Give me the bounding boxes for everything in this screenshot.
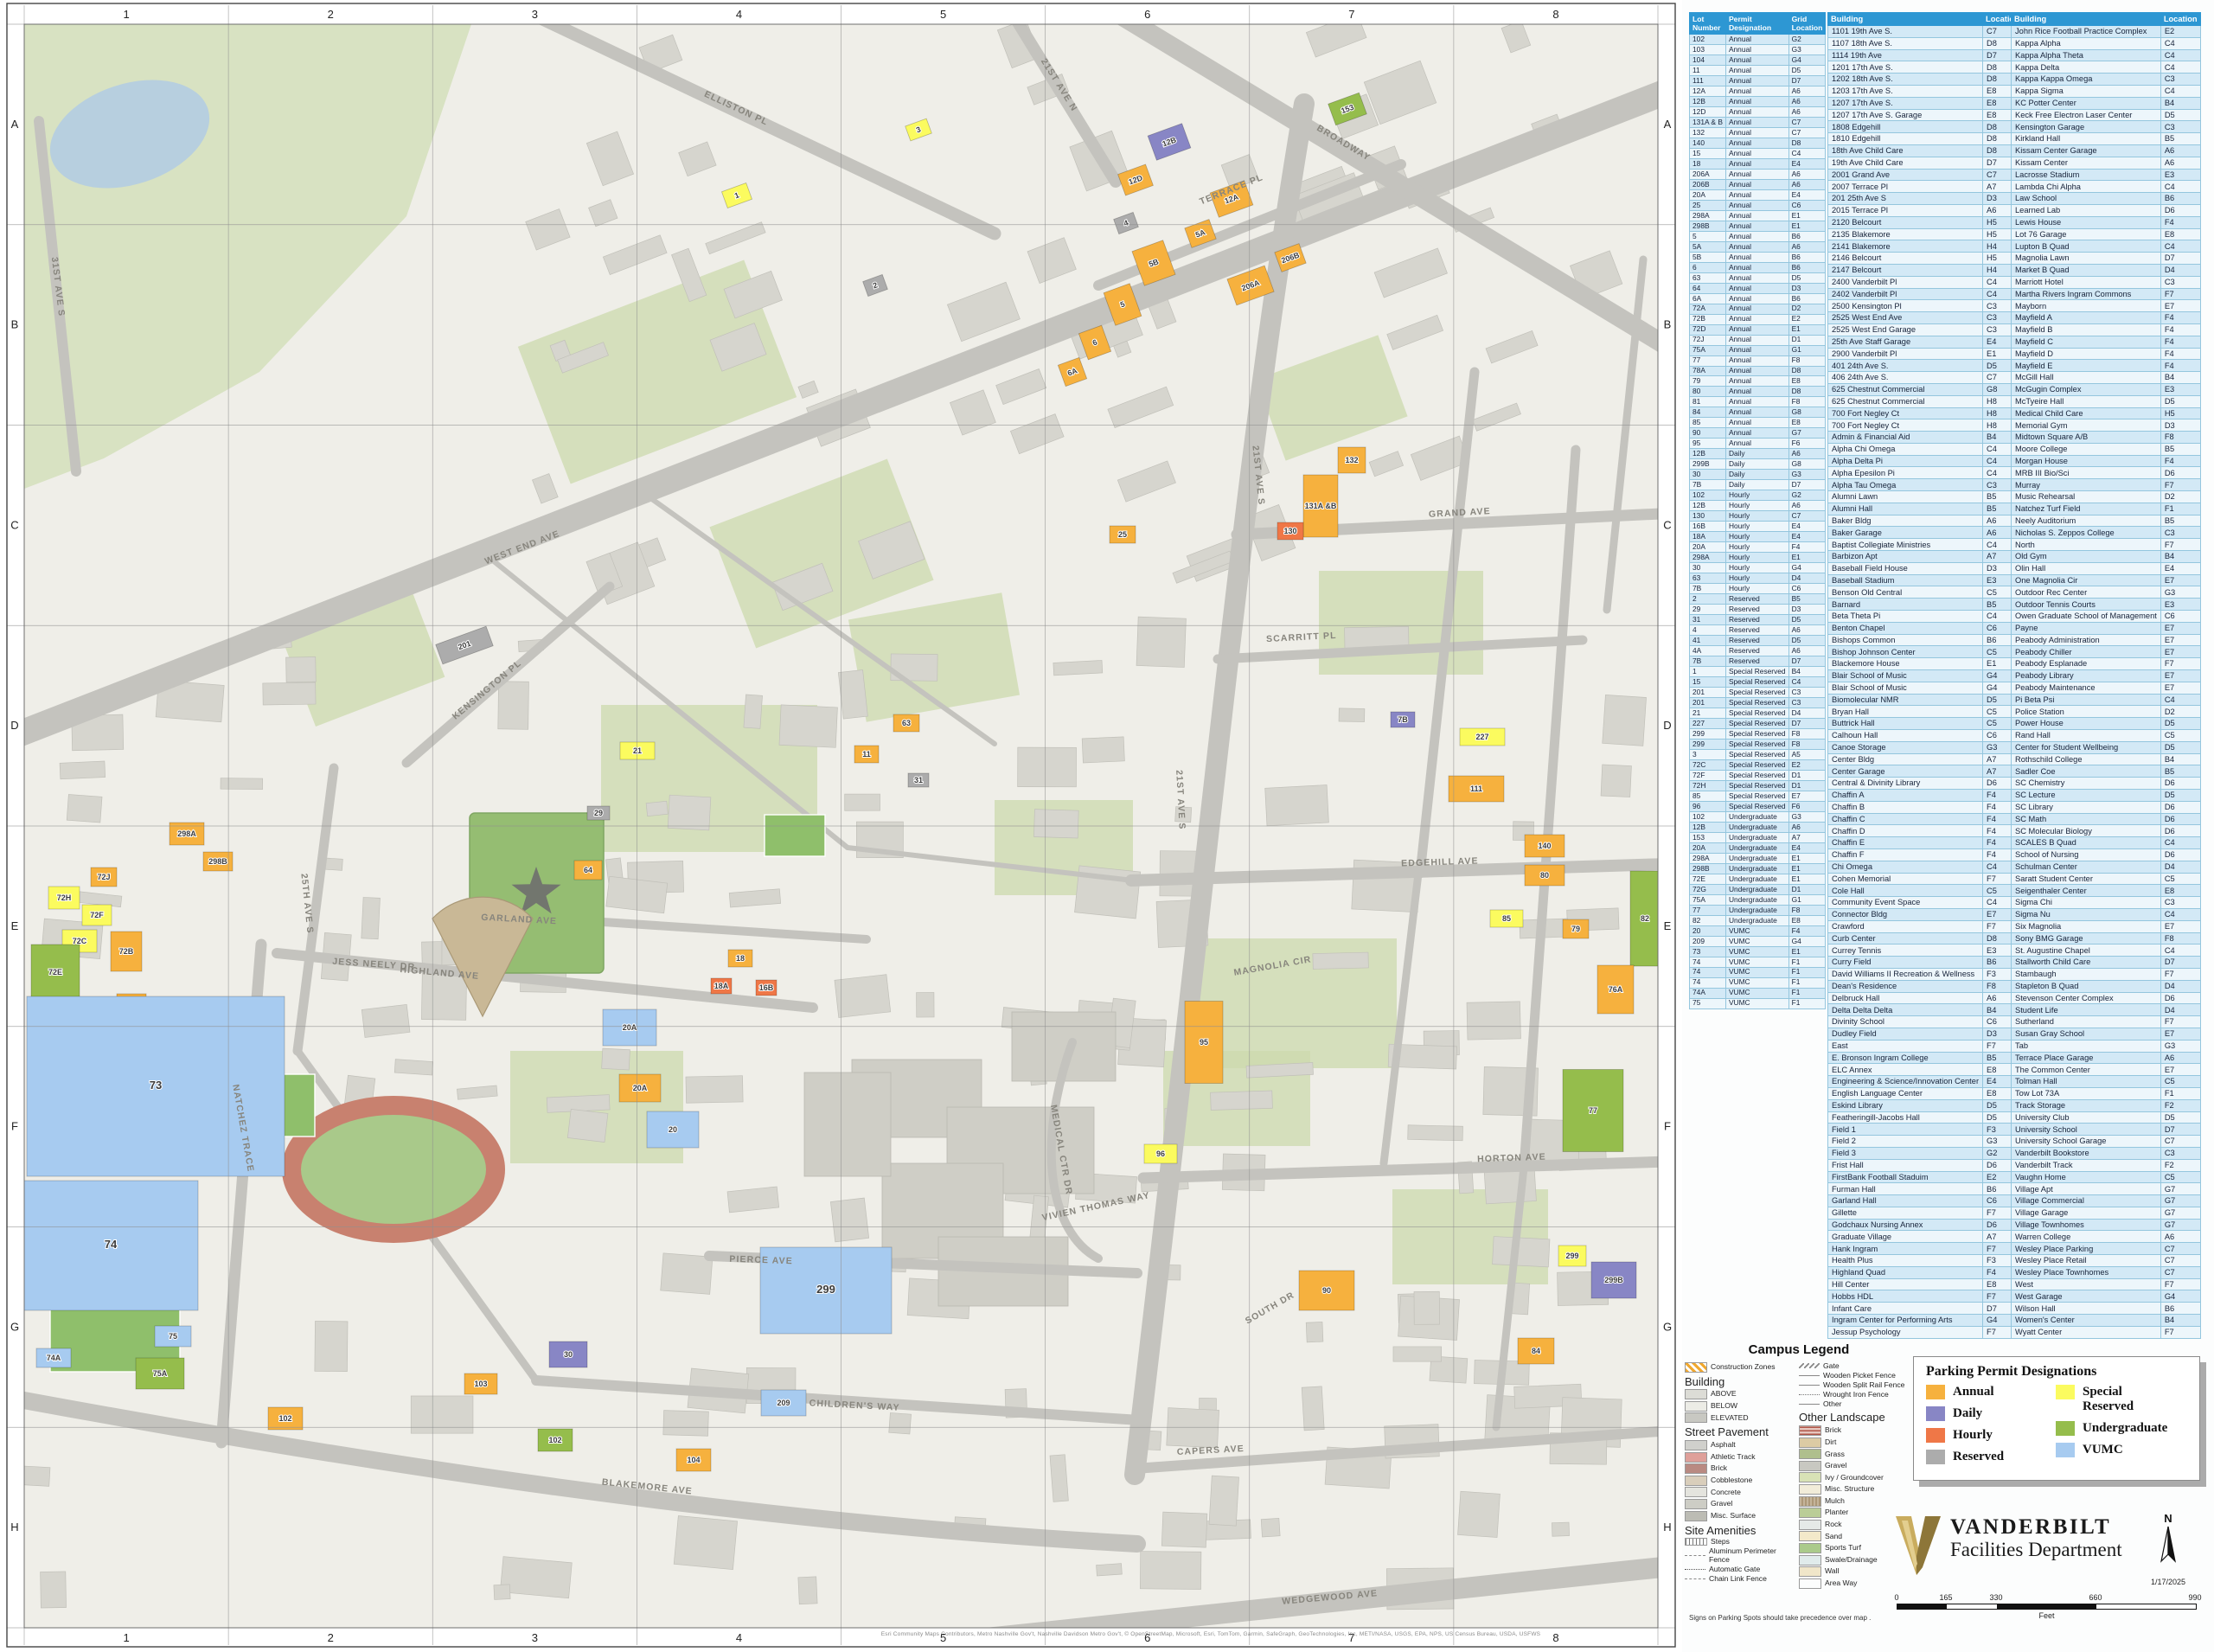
table-cell: Memorial Gym (2012, 419, 2161, 432)
table-cell: F8 (1788, 739, 1826, 749)
table-cell: 19th Ave Child Care (1828, 157, 1983, 169)
table-cell: F7 (2160, 1278, 2200, 1290)
table-cell: Pi Beta Psi (2012, 694, 2161, 706)
table-cell: Mayborn (2012, 300, 2161, 312)
table-row: 30DailyG3 (1690, 470, 1826, 480)
table-cell: 82 (1690, 915, 1726, 925)
legend-item: Wrought Iron Fence (1799, 1391, 1913, 1399)
table-cell: 6A (1690, 293, 1726, 304)
table-cell: Undergraduate (1725, 832, 1788, 842)
legend-swatch-icon (1799, 1449, 1821, 1459)
table-cell: 130 (1690, 511, 1726, 522)
table-row: 5AAnnualA6 (1690, 241, 1826, 252)
table-cell: Mayfield E (2012, 360, 2161, 372)
table-cell: Center Garage (1828, 765, 1983, 778)
permit-label: Special Reserved (2083, 1385, 2134, 1414)
campus-map-canvas: 12B12D12A206A206B5A5B566A415331225131A &… (0, 0, 1682, 1652)
table-cell: Village Commercial (2012, 1195, 2161, 1207)
table-cell: Chaffin B (1828, 801, 1983, 813)
legend-swatch-icon (1799, 1425, 1821, 1436)
table-cell: Medical Child Care (2012, 407, 2161, 419)
table-cell: Bishop Johnson Center (1828, 646, 1983, 658)
table-row: 1101 19th Ave S.C7 (1828, 26, 2023, 38)
table-row: St. Augustine ChapelC4 (2012, 944, 2201, 957)
table-cell: Annual (1725, 127, 1788, 138)
table-cell: Reserved (1725, 656, 1788, 667)
table-cell: 153 (1690, 832, 1726, 842)
table-row: Kappa SigmaC4 (2012, 85, 2201, 97)
table-cell: Reserved (1725, 594, 1788, 605)
table-cell: East (1828, 1040, 1983, 1052)
table-cell: Lambda Chi Alpha (2012, 181, 2161, 193)
table-cell: 1 (1690, 667, 1726, 677)
north-arrow: N (2149, 1512, 2187, 1569)
vanderbilt-v-icon (1895, 1515, 1942, 1576)
table-row: Blair School of MusicG4 (1828, 682, 2023, 694)
grid-row-label: D (10, 719, 18, 732)
table-cell: 1107 18th Ave S. (1828, 37, 1983, 49)
table-row: 20AUndergraduateE4 (1690, 842, 1826, 853)
table-row: Furman HallB6 (1828, 1183, 2023, 1195)
table-cell: C7 (2160, 1266, 2200, 1278)
table-cell: E8 (1788, 376, 1826, 387)
table-cell: E3 (2160, 383, 2200, 395)
table-cell: 63 (1690, 573, 1726, 584)
legend-label: Wrought Iron Fence (1823, 1391, 1889, 1399)
table-cell: 72F (1690, 770, 1726, 780)
table-cell: Annual (1725, 138, 1788, 148)
table-row: Wilson HallB6 (2012, 1303, 2201, 1315)
table-cell: Special Reserved (1725, 708, 1788, 718)
table-row: 401 24th Ave S.D5 (1828, 360, 2023, 372)
table-cell: Olin Hall (2012, 562, 2161, 574)
table-cell: Benson Old Central (1828, 586, 1983, 599)
column-header: Permit Designation (1725, 13, 1788, 35)
table-cell: Hourly (1725, 563, 1788, 573)
table-cell: Seigenthaler Center (2012, 885, 2161, 897)
table-row: 102UndergraduateG3 (1690, 811, 1826, 822)
table-cell: Delbruck Hall (1828, 992, 1983, 1004)
legend-item: ELEVATED (1685, 1412, 1799, 1423)
table-row: 79AnnualE8 (1690, 376, 1826, 387)
table-row: Martha Rivers Ingram CommonsF7 (2012, 288, 2201, 300)
table-row: Beta Theta PiC4 (1828, 611, 2023, 623)
table-row: E. Bronson Ingram CollegeB5 (1828, 1052, 2023, 1064)
table-row: Field 1F3 (1828, 1124, 2023, 1136)
table-cell: 73 (1690, 946, 1726, 957)
table-cell: 132 (1690, 127, 1726, 138)
table-cell: G1 (1788, 894, 1826, 905)
table-cell: St. Augustine Chapel (2012, 944, 2161, 957)
table-row: School of NursingD6 (2012, 848, 2201, 861)
table-cell: F4 (1788, 542, 1826, 553)
permit-label: VUMC (2083, 1443, 2123, 1457)
table-cell: Annual (1725, 179, 1788, 189)
table-cell: Kissam Center (2012, 157, 2161, 169)
table-cell: VUMC (1725, 936, 1788, 946)
table-row: Hank IngramF7 (1828, 1243, 2023, 1255)
table-row: 132AnnualC7 (1690, 127, 1826, 138)
table-row: Keck Free Electron Laser CenterD5 (2012, 109, 2201, 121)
table-row: 18AHourlyE4 (1690, 532, 1826, 542)
table-row: 2135 BlakemoreH5 (1828, 228, 2023, 240)
table-cell: D8 (1788, 387, 1826, 397)
grid-row-label: A (1664, 118, 1672, 131)
table-row: WestF7 (2012, 1278, 2201, 1290)
table-cell: Kirkland Hall (2012, 133, 2161, 145)
legend-swatch-icon (1799, 1404, 1820, 1405)
table-cell: Annual (1725, 252, 1788, 262)
table-row: Buttrick HallC5 (1828, 718, 2023, 730)
table-row: 1Special ReservedB4 (1690, 667, 1826, 677)
table-cell: 2900 Vanderbilt Pl (1828, 348, 1983, 360)
table-cell: F7 (2160, 1016, 2200, 1028)
table-cell: B6 (1788, 231, 1826, 241)
parking-lot-label: 74A (47, 1354, 61, 1362)
table-row: McTyeire HallD5 (2012, 395, 2201, 407)
legend-swatch-icon (1685, 1511, 1707, 1521)
permit-label: Annual (1953, 1385, 1994, 1399)
legend-swatch-icon (1799, 1472, 1821, 1482)
table-cell: 85 (1690, 418, 1726, 428)
table-row: Dudley FieldD3 (1828, 1028, 2023, 1040)
table-cell: F8 (1788, 355, 1826, 366)
table-row: Tolman HallC5 (2012, 1076, 2201, 1088)
table-row: 201Special ReservedC3 (1690, 688, 1826, 698)
table-cell: F7 (2160, 288, 2200, 300)
table-cell: E1 (1788, 853, 1826, 863)
table-cell: E7 (2160, 646, 2200, 658)
table-cell: A6 (1788, 646, 1826, 656)
table-cell: Annual (1725, 86, 1788, 96)
table-cell: F1 (2160, 503, 2200, 515)
table-cell: E7 (2160, 300, 2200, 312)
table-row: 111AnnualD7 (1690, 75, 1826, 86)
legend-label: Planter (1825, 1508, 1848, 1517)
table-cell: F4 (2160, 312, 2200, 324)
logo-dept-text: Facilities Department (1950, 1539, 2122, 1560)
parking-permit-legend: Parking Permit Designations AnnualDailyH… (1913, 1356, 2200, 1481)
table-cell: Admin & Financial Aid (1828, 432, 1983, 444)
table-cell: 72D (1690, 324, 1726, 335)
grid-col-label: 7 (1348, 8, 1354, 21)
grid-col-label: 2 (328, 1631, 334, 1644)
table-row: 2ReservedB5 (1690, 594, 1826, 605)
table-row: 72AAnnualD2 (1690, 304, 1826, 314)
table-cell: 1808 Edgehill (1828, 121, 1983, 133)
table-cell: Hank Ingram (1828, 1243, 1983, 1255)
table-cell: Lacrosse Stadium (2012, 169, 2161, 181)
table-cell: C4 (2160, 85, 2200, 97)
table-row: West GarageG4 (2012, 1290, 2201, 1303)
map-date: 1/17/2025 (2139, 1578, 2198, 1586)
table-cell: Undergraduate (1725, 915, 1788, 925)
table-cell: KC Potter Center (2012, 97, 2161, 109)
legend-label: Gate (1823, 1362, 1840, 1371)
table-cell: 72G (1690, 884, 1726, 894)
table-cell: 5 (1690, 231, 1726, 241)
table-row: 6AAnnualB6 (1690, 293, 1826, 304)
table-cell: Hill Center (1828, 1278, 1983, 1290)
table-row: 299Special ReservedF8 (1690, 728, 1826, 739)
permit-swatch-icon (1926, 1428, 1945, 1443)
table-row: Baseball StadiumE3 (1828, 574, 2023, 586)
table-row: Peabody LibraryE7 (2012, 670, 2201, 682)
legend-label: Mulch (1825, 1497, 1845, 1506)
grid-row-label: E (1664, 919, 1672, 932)
table-cell: E7 (2160, 574, 2200, 586)
parking-lot-label: 18A (714, 982, 729, 990)
table-cell: 1207 17th Ave S. (1828, 97, 1983, 109)
table-cell: F8 (2160, 432, 2200, 444)
parking-lot-label: 140 (1538, 842, 1551, 850)
table-cell: C7 (2160, 1136, 2200, 1148)
table-cell: Frist Hall (1828, 1159, 1983, 1171)
table-row: Olin HallE4 (2012, 562, 2201, 574)
table-cell: Tolman Hall (2012, 1076, 2161, 1088)
table-row: 75AUndergraduateG1 (1690, 894, 1826, 905)
table-row: 12AAnnualA6 (1690, 86, 1826, 96)
campus-map: 12B12D12A206A206B5A5B566A415331225131A &… (0, 0, 1682, 1652)
legend-swatch-icon (1799, 1531, 1821, 1541)
table-cell: A6 (2160, 144, 2200, 157)
table-row: Wyatt CenterF7 (2012, 1326, 2201, 1338)
legend-item: Aluminum Perimeter Fence (1685, 1547, 1799, 1564)
table-cell: B5 (2160, 765, 2200, 778)
table-cell: 16B (1690, 522, 1726, 532)
table-row: 2146 BelcourtH5 (1828, 253, 2023, 265)
table-cell: Schulman Center (2012, 861, 2161, 873)
table-cell: Stambaugh (2012, 968, 2161, 980)
legend-swatch-icon (1799, 1543, 1821, 1553)
table-row: Lewis HouseF4 (2012, 216, 2201, 228)
table-cell: Calhoun Hall (1828, 730, 1983, 742)
table-cell: 298A (1690, 553, 1726, 563)
column-header: Building (2012, 13, 2161, 26)
table-cell: F8 (1788, 905, 1826, 915)
legend-swatch-icon (1799, 1461, 1821, 1471)
table-cell: D1 (1788, 780, 1826, 791)
table-cell: 102 (1690, 35, 1726, 45)
table-cell: Six Magnolia (2012, 920, 2161, 932)
table-cell: Alumni Lawn (1828, 491, 1983, 503)
table-cell: 2146 Belcourt (1828, 253, 1983, 265)
table-row: Center BldgA7 (1828, 753, 2023, 765)
table-row: 74VUMCF1 (1690, 977, 1826, 988)
legend-label: ELEVATED (1711, 1414, 1749, 1423)
table-cell: E8 (1788, 418, 1826, 428)
table-cell: F2 (2160, 1099, 2200, 1111)
table-cell: Vanderbilt Track (2012, 1159, 2161, 1171)
grid-row-label: G (1663, 1320, 1672, 1333)
table-cell: C7 (1788, 511, 1826, 522)
parking-lot-label: 299 (816, 1283, 835, 1296)
table-cell: Dudley Field (1828, 1028, 1983, 1040)
table-cell: Undergraduate (1725, 874, 1788, 884)
table-cell: 2141 Blakemore (1828, 240, 1983, 253)
table-cell: Annual (1725, 148, 1788, 158)
legend-label: Gravel (1825, 1462, 1846, 1470)
table-cell: 2015 Terrace Pl (1828, 204, 1983, 216)
table-row: Center for Student WellbeingD5 (2012, 741, 2201, 753)
table-cell: 72C (1690, 759, 1726, 770)
table-row: Benton ChapelC6 (1828, 622, 2023, 634)
table-row: Engineering & Science/Innovation CenterE… (1828, 1076, 2023, 1088)
parking-lot-label: 95 (1200, 1038, 1208, 1047)
table-cell: 140 (1690, 138, 1726, 148)
table-cell: E7 (2160, 1028, 2200, 1040)
legend-label: Wall (1825, 1567, 1839, 1576)
table-cell: B5 (1788, 594, 1826, 605)
table-cell: Terrace Place Garage (2012, 1052, 2161, 1064)
table-cell: Jessup Psychology (1828, 1326, 1983, 1338)
table-cell: Gillette (1828, 1207, 1983, 1219)
table-row: Godchaux Nursing AnnexD6 (1828, 1219, 2023, 1231)
table-row: TabG3 (2012, 1040, 2201, 1052)
table-row: Lot 76 GarageE8 (2012, 228, 2201, 240)
table-row: 700 Fort Negley CtH8 (1828, 407, 2023, 419)
table-cell: 7B (1690, 584, 1726, 594)
table-row: Wesley Place RetailC7 (2012, 1255, 2201, 1267)
table-cell: B5 (2160, 133, 2200, 145)
table-cell: University School Garage (2012, 1136, 2161, 1148)
table-cell: E8 (2160, 885, 2200, 897)
table-row: 2525 West End AveC3 (1828, 312, 2023, 324)
table-row: Peabody MaintenanceE7 (2012, 682, 2201, 694)
table-row: Cohen MemorialF7 (1828, 873, 2023, 885)
table-cell: D2 (1788, 304, 1826, 314)
table-cell: E. Bronson Ingram College (1828, 1052, 1983, 1064)
table-row: Alpha Tau OmegaC3 (1828, 479, 2023, 491)
legend-swatch-icon (1799, 1363, 1820, 1368)
table-row: Dean's ResidenceF8 (1828, 980, 2023, 992)
table-cell: G2 (1788, 35, 1826, 45)
vanderbilt-campus-parking-map-page: 12B12D12A206A206B5A5B566A415331225131A &… (0, 0, 2214, 1652)
table-cell: D7 (1788, 656, 1826, 667)
table-cell: B6 (2160, 1303, 2200, 1315)
table-row: 1107 18th Ave S.D8 (1828, 37, 2023, 49)
grid-col-label: 3 (532, 8, 538, 21)
table-row: Alpha Delta PiC4 (1828, 455, 2023, 467)
table-row: Rothschild CollegeB4 (2012, 753, 2201, 765)
table-row: 1810 EdgehillD8 (1828, 133, 2023, 145)
table-cell: F2 (2160, 1159, 2200, 1171)
table-row: Alumni LawnB5 (1828, 491, 2023, 503)
table-cell: 72E (1690, 874, 1726, 884)
legend-item: Athletic Track (1685, 1452, 1799, 1463)
table-row: 11AnnualD5 (1690, 65, 1826, 75)
table-cell: F4 (2160, 455, 2200, 467)
table-cell: 2500 Kensington Pl (1828, 300, 1983, 312)
building-table-2: BuildingLocationJohn Rice Football Pract… (2011, 12, 2201, 1339)
table-row: Rand HallC5 (2012, 730, 2201, 742)
grid-row-label: A (11, 118, 19, 131)
table-row: Learned LabD6 (2012, 204, 2201, 216)
legend-item: Misc. Structure (1799, 1484, 1913, 1495)
table-cell: Annual (1725, 241, 1788, 252)
legend-swatch-icon (1799, 1385, 1820, 1386)
table-cell: C3 (2160, 1147, 2200, 1159)
table-cell: Peabody Chiller (2012, 646, 2161, 658)
table-cell: E3 (2160, 599, 2200, 611)
table-cell: Reserved (1725, 605, 1788, 615)
table-row: Baptist Collegiate MinistriesC4 (1828, 539, 2023, 551)
table-cell: Daily (1725, 480, 1788, 490)
table-cell: Center for Student Wellbeing (2012, 741, 2161, 753)
table-row: Infant CareD7 (1828, 1303, 2023, 1315)
table-cell: Village Apt (2012, 1183, 2161, 1195)
table-cell: C4 (2160, 37, 2200, 49)
table-row: Kappa DeltaC4 (2012, 61, 2201, 74)
table-row: Peabody EsplanadeF7 (2012, 658, 2201, 670)
table-cell: Annual (1725, 65, 1788, 75)
table-row: 1808 EdgehillD8 (1828, 121, 2023, 133)
table-row: The Common CenterE7 (2012, 1064, 2201, 1076)
table-cell: G3 (1788, 44, 1826, 54)
table-cell: F4 (2160, 216, 2200, 228)
legend-item: Cobblestone (1685, 1476, 1799, 1486)
table-cell: F8 (2160, 932, 2200, 944)
table-cell: C4 (2160, 944, 2200, 957)
table-cell: 74 (1690, 957, 1726, 967)
table-cell: Track Storage (2012, 1099, 2161, 1111)
table-row: 1203 17th Ave S.E8 (1828, 85, 2023, 97)
grid-col-label: 4 (736, 1631, 742, 1644)
map-attribution: Esri Community Maps Contributors, Metro … (761, 1631, 1660, 1637)
table-cell: 18 (1690, 158, 1726, 169)
table-cell: 700 Fort Negley Ct (1828, 407, 1983, 419)
table-cell: West Garage (2012, 1290, 2161, 1303)
table-cell: Tow Lot 73A (2012, 1087, 2161, 1099)
grid-col-label: 1 (123, 1631, 129, 1644)
legend-swatch-icon (1799, 1566, 1821, 1577)
table-cell: D4 (1788, 573, 1826, 584)
legend-swatch-icon (1685, 1463, 1707, 1474)
table-cell: B4 (2160, 753, 2200, 765)
table-row: 15AnnualC4 (1690, 148, 1826, 158)
table-cell: 41 (1690, 636, 1726, 646)
table-cell: Central & Divinity Library (1828, 778, 1983, 790)
table-cell: John Rice Football Practice Complex (2012, 26, 2161, 38)
table-cell: Outdoor Rec Center (2012, 586, 2161, 599)
table-row: 63HourlyD4 (1690, 573, 1826, 584)
table-cell: G3 (2160, 1040, 2200, 1052)
table-cell: 75A (1690, 894, 1726, 905)
table-row: Baker BldgA6 (1828, 515, 2023, 527)
table-cell: 12B (1690, 822, 1726, 832)
table-cell: Vaughn Home (2012, 1171, 2161, 1183)
legend-item: Area Way (1799, 1578, 1913, 1589)
table-cell: 74A (1690, 988, 1726, 998)
table-row: Eskind LibraryD5 (1828, 1099, 2023, 1111)
table-row: 21Special ReservedD4 (1690, 708, 1826, 718)
column-header: Grid Location (1788, 13, 1826, 35)
table-cell: C4 (2160, 240, 2200, 253)
table-row: 63AnnualD5 (1690, 272, 1826, 283)
permit-label: Undergraduate (2083, 1421, 2167, 1436)
table-cell: Stallworth Child Care (2012, 957, 2161, 969)
table-row: 3Special ReservedA5 (1690, 749, 1826, 759)
table-cell: Midtown Square A/B (2012, 432, 2161, 444)
table-cell: D8 (1788, 366, 1826, 376)
table-cell: D5 (1788, 65, 1826, 75)
column-header: Building (1828, 13, 1983, 26)
table-cell: 4A (1690, 646, 1726, 656)
table-row: 2015 Terrace PlA6 (1828, 204, 2023, 216)
table-cell: 299 (1690, 739, 1726, 749)
legend-label: Chain Link Fence (1709, 1575, 1767, 1584)
parking-lot-label: 72E (48, 968, 62, 976)
